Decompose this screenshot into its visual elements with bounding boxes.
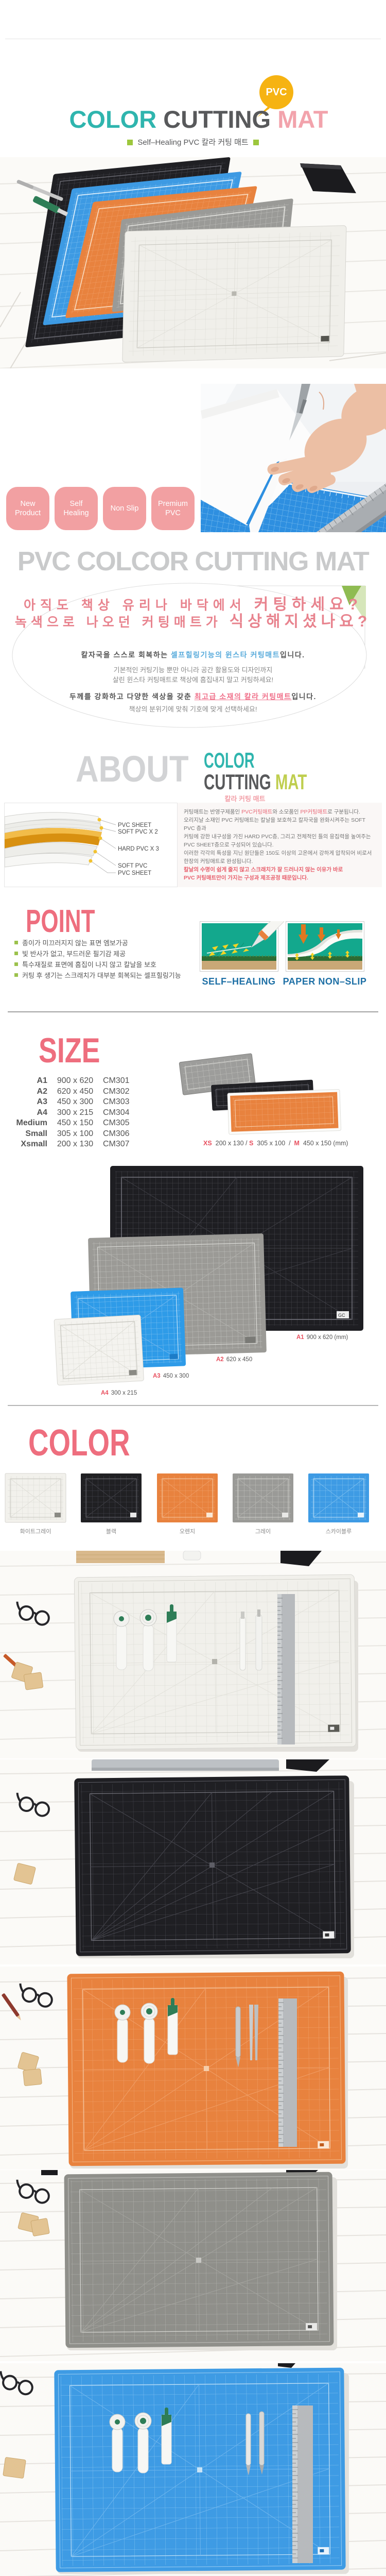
svg-text:GC: GC <box>338 1313 345 1318</box>
svg-text:A1900 x 620 (mm): A1900 x 620 (mm) <box>296 1334 348 1341</box>
svg-text:A4300 x 215: A4300 x 215 <box>101 1390 137 1396</box>
svg-text:PVC SHEET: PVC SHEET <box>118 822 151 828</box>
svg-text:SOFT PVC X 2: SOFT PVC X 2 <box>118 829 158 835</box>
svg-text:A2620 x 450: A2620 x 450 <box>216 1357 252 1363</box>
svg-text:SOFT PVC: SOFT PVC <box>118 863 147 869</box>
svg-text:HARD PVC X 3: HARD PVC X 3 <box>118 846 159 852</box>
svg-text:PVC SHEET: PVC SHEET <box>118 870 151 876</box>
svg-text:A3450 x 300: A3450 x 300 <box>153 1373 189 1379</box>
